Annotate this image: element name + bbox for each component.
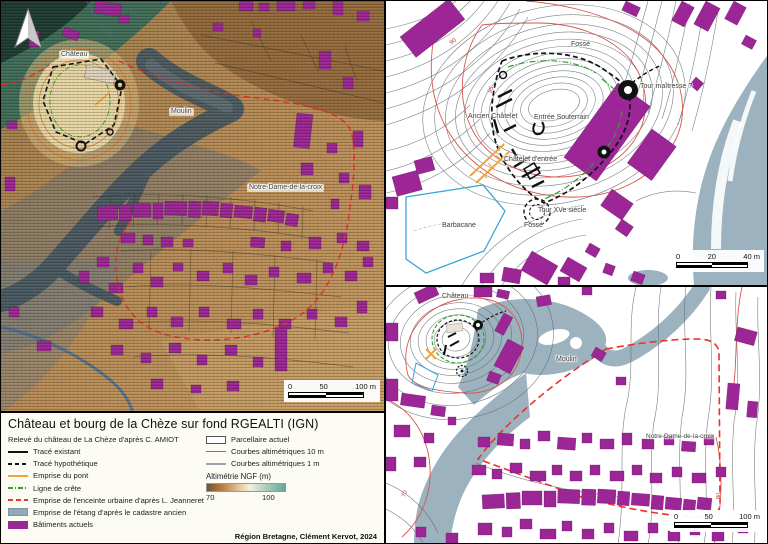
left-map-panel: Château Moulin Notre-Dame-de-la-croix 05… bbox=[1, 1, 384, 544]
scale-tick: 50 bbox=[704, 512, 712, 521]
label-tour-xve: Tour XVe siècle bbox=[538, 207, 586, 215]
scale-bar-graphic bbox=[288, 392, 364, 398]
legend-item-label: Emprise de l'étang d'après le cadastre a… bbox=[33, 508, 186, 517]
legend-item: Parcellaire actuel bbox=[206, 435, 376, 444]
scale-tick: 0 bbox=[288, 382, 292, 391]
scale-bar-left: 050100 m bbox=[284, 380, 380, 402]
legend-subtitle: Relevé du château de La Chèze d'après C.… bbox=[8, 435, 204, 444]
courbes-1m-swatch-icon bbox=[206, 463, 226, 465]
label-tour-maitresse: Tour maîtresse ? bbox=[640, 83, 692, 91]
legend-item-label: Parcellaire actuel bbox=[231, 435, 289, 444]
figure-title: Château et bourg de la Chèze sur fond RG… bbox=[8, 417, 377, 431]
altimetry-max: 100 bbox=[262, 493, 275, 502]
top-right-map-panel: Fossé Tour maîtresse ? Ancien Châtelet E… bbox=[386, 1, 768, 285]
legend-item-label: Emprise de l'enceinte urbaine d'après L.… bbox=[33, 496, 204, 505]
left-map-graphic bbox=[1, 1, 384, 413]
legend-item: Ligne de crête bbox=[8, 484, 204, 493]
label-entree-souterrain: Entrée Souterrain bbox=[534, 114, 589, 122]
scale-bar-graphic bbox=[674, 522, 748, 528]
scale-tick: 50 bbox=[319, 382, 327, 391]
scale-tick: 0 bbox=[676, 252, 680, 261]
scale-tick: 100 m bbox=[355, 382, 376, 391]
contour-label-80: 80 bbox=[716, 492, 723, 499]
legend-item-label: Emprise du pont bbox=[33, 471, 88, 480]
etang-swatch-icon bbox=[8, 508, 28, 516]
scale-tick: 100 m bbox=[739, 512, 760, 521]
label-chateau: Château bbox=[59, 51, 89, 59]
panel-divider-vertical bbox=[384, 1, 386, 544]
label-fosse-top: Fossé bbox=[571, 41, 590, 49]
label-barbacane: Barbacane bbox=[442, 222, 476, 230]
legend-item: Courbes altimétriques 1 m bbox=[206, 459, 376, 468]
emprise-pont-swatch-icon bbox=[8, 475, 28, 477]
enceinte-urbaine-swatch-icon bbox=[8, 499, 28, 501]
label-chateau: Château bbox=[442, 293, 468, 301]
legend-item: Tracé existant bbox=[8, 447, 204, 456]
ligne-crete-swatch-icon bbox=[8, 487, 28, 489]
legend-item-label: Bâtiments actuels bbox=[33, 520, 93, 529]
altimetry-gradient-bar bbox=[206, 483, 286, 492]
scale-tick: 40 m bbox=[743, 252, 760, 261]
scale-tick: 20 bbox=[708, 252, 716, 261]
panel-divider-horizontal bbox=[384, 285, 768, 287]
label-chatelet-entree: Châtelet d'entrée bbox=[504, 156, 557, 164]
scale-bar-top-right: 02040 m bbox=[672, 250, 764, 272]
north-arrow-icon bbox=[11, 7, 45, 49]
label-moulin: Moulin bbox=[556, 356, 577, 364]
map-figure: Château Moulin Notre-Dame-de-la-croix 05… bbox=[0, 0, 768, 544]
parcellaire-swatch-icon bbox=[206, 436, 226, 444]
scale-bar-graphic bbox=[676, 262, 748, 268]
legend-item: Courbes altimétriques 10 m bbox=[206, 447, 376, 456]
courbes-10m-swatch-icon bbox=[206, 451, 226, 453]
trace-existant-swatch-icon bbox=[8, 451, 28, 453]
legend-item: Bâtiments actuels bbox=[8, 520, 204, 529]
legend-item-label: Courbes altimétriques 10 m bbox=[231, 447, 324, 456]
label-ancien-chatelet: Ancien Châtelet bbox=[468, 113, 517, 121]
label-notre-dame: Notre-Dame-de-la-croix bbox=[646, 433, 714, 441]
scale-tick: 0 bbox=[674, 512, 678, 521]
legend-item: Emprise du pont bbox=[8, 471, 204, 480]
legend-box: Château et bourg de la Chèze sur fond RG… bbox=[1, 411, 384, 544]
trace-hypothetique-swatch-icon bbox=[8, 463, 28, 465]
bottom-right-map-graphic bbox=[386, 287, 768, 544]
legend-item-label: Ligne de crête bbox=[33, 484, 81, 493]
legend-item-label: Tracé hypothétique bbox=[33, 459, 98, 468]
label-fosse-bottom: Fossé bbox=[524, 222, 543, 230]
batiments-swatch-icon bbox=[8, 521, 28, 529]
scale-bar-bottom-right: 050100 m bbox=[670, 510, 764, 532]
legend-item-label: Courbes altimétriques 1 m bbox=[231, 459, 320, 468]
legend-item: Emprise de l'enceinte urbaine d'après L.… bbox=[8, 496, 204, 505]
credit-text: Région Bretagne, Clément Kervot, 2024 bbox=[235, 532, 377, 541]
bottom-right-map-panel: Château Moulin Notre-Dame-de-la-croix 70… bbox=[386, 287, 768, 544]
altimetry-label: Altimétrie NGF (m) bbox=[206, 472, 376, 481]
label-moulin: Moulin bbox=[169, 108, 194, 116]
legend-item: Tracé hypothétique bbox=[8, 459, 204, 468]
legend-item-label: Tracé existant bbox=[33, 447, 80, 456]
label-notre-dame: Notre-Dame-de-la-croix bbox=[247, 184, 324, 192]
altimetry-min: 70 bbox=[206, 493, 214, 502]
legend-item: Emprise de l'étang d'après le cadastre a… bbox=[8, 508, 204, 517]
